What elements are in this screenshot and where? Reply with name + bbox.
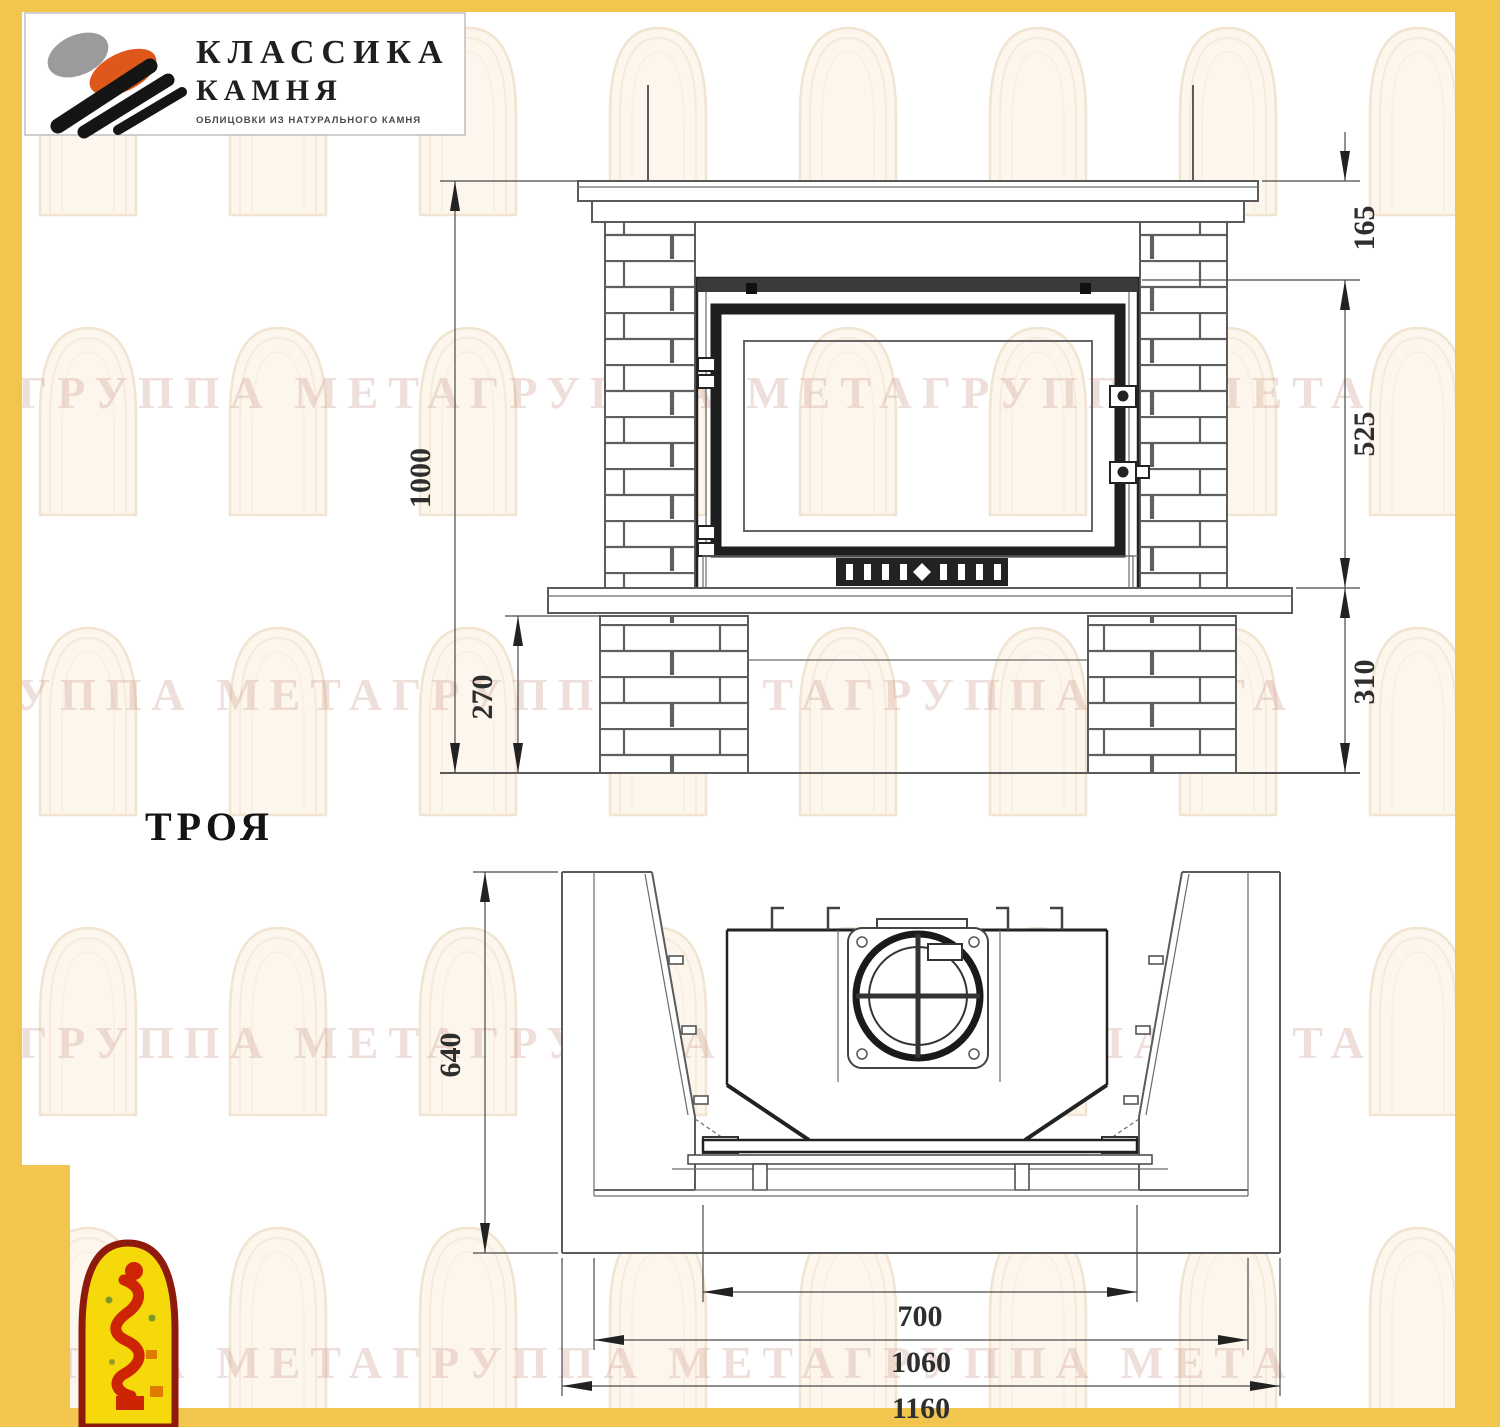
insert-clip-right xyxy=(1080,283,1091,294)
left-brick-column xyxy=(605,222,695,588)
dim-opening-width: 700 xyxy=(898,1300,943,1333)
front-slab-fill xyxy=(563,1190,1279,1252)
top-border-bar xyxy=(0,0,1500,12)
right-plinth xyxy=(1088,616,1236,773)
right-brick-column xyxy=(1140,222,1227,588)
vent-grille xyxy=(836,558,1008,586)
dim-total-width: 1160 xyxy=(892,1392,950,1425)
watermark-text: ГРУППА МЕТАГРУППА МЕТАГРУППА МЕТА xyxy=(0,1337,1296,1388)
right-border-bar xyxy=(1455,0,1500,1427)
dim-bench-to-floor: 310 xyxy=(1348,660,1381,705)
fireplace-technical-drawing: ГРУППА МЕТАГРУППА МЕТАГРУППА МЕТА ГРУППА… xyxy=(0,0,1500,1427)
brand-title-line2: КАМНЯ xyxy=(196,74,343,107)
bottom-left-border-block xyxy=(0,1165,70,1427)
insert-clip-left xyxy=(746,283,757,294)
damper-handle xyxy=(928,944,962,960)
model-name-label: ТРОЯ xyxy=(145,804,274,849)
flue-collar xyxy=(848,928,988,1068)
scanned-drawing-page: ГРУППА МЕТАГРУППА МЕТАГРУППА МЕТА ГРУППА… xyxy=(0,0,1500,1427)
dim-depth: 640 xyxy=(434,1033,467,1078)
mantel-shelf-fill xyxy=(578,181,1258,201)
dim-height-total: 1000 xyxy=(404,448,437,508)
dim-body-width: 1060 xyxy=(891,1346,951,1379)
left-plinth xyxy=(600,616,748,773)
dim-insert-height: 525 xyxy=(1348,412,1381,457)
brand-logo: КЛАССИКА КАМНЯ ОБЛИЦОВКИ ИЗ НАТУРАЛЬНОГО… xyxy=(25,13,465,135)
brand-tagline: ОБЛИЦОВКИ ИЗ НАТУРАЛЬНОГО КАМНЯ xyxy=(196,115,421,126)
bottom-border-bar xyxy=(0,1408,1500,1427)
firebird-logo-icon xyxy=(82,1243,175,1427)
mantel-tier2-fill xyxy=(592,201,1244,222)
brand-title-line1: КЛАССИКА xyxy=(196,34,450,71)
dim-plinth-height: 270 xyxy=(466,675,499,720)
hearth-bench-fill xyxy=(548,588,1292,613)
insert-top-band xyxy=(697,278,1138,292)
dim-mantel-to-insert: 165 xyxy=(1348,206,1381,251)
